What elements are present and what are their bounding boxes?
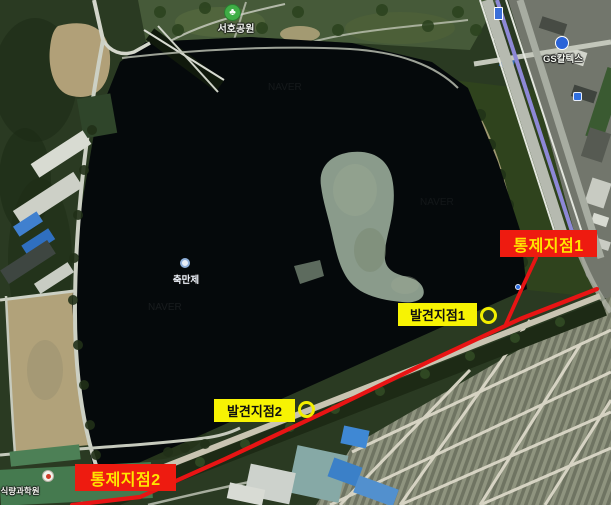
lake-marker-icon[interactable] — [180, 258, 190, 268]
satellite-map[interactable]: NAVER NAVER NAVER ♣ 서호공원 축만제 GS칼텍스 식량과학원… — [0, 0, 611, 505]
institute-label[interactable]: 식량과학원 — [0, 485, 50, 497]
gas-station-icon[interactable] — [555, 36, 569, 50]
road-sign-icon — [494, 7, 503, 20]
park-label[interactable]: 서호공원 — [204, 20, 268, 35]
control-point-2-box: 통제지점2 — [75, 464, 176, 491]
discovery-point-2-box: 발견지점2 — [214, 399, 295, 422]
lake-label[interactable]: 축만제 — [165, 272, 207, 286]
parking-icon[interactable] — [573, 92, 582, 101]
institute-icon-dot — [46, 474, 51, 479]
gas-station-label[interactable]: GS칼텍스 — [534, 51, 592, 65]
svg-text:NAVER: NAVER — [148, 302, 182, 313]
control-point-1-box: 통제지점1 — [500, 230, 597, 257]
discovery-circle-2 — [298, 401, 315, 418]
svg-text:NAVER: NAVER — [268, 82, 302, 93]
discovery-circle-1 — [480, 307, 497, 324]
park-icon[interactable]: ♣ — [224, 4, 241, 21]
shore-marker-dot — [515, 284, 521, 290]
discovery-point-1-box: 발견지점1 — [398, 303, 477, 326]
svg-text:NAVER: NAVER — [420, 197, 454, 208]
institute-icon[interactable] — [42, 470, 54, 482]
